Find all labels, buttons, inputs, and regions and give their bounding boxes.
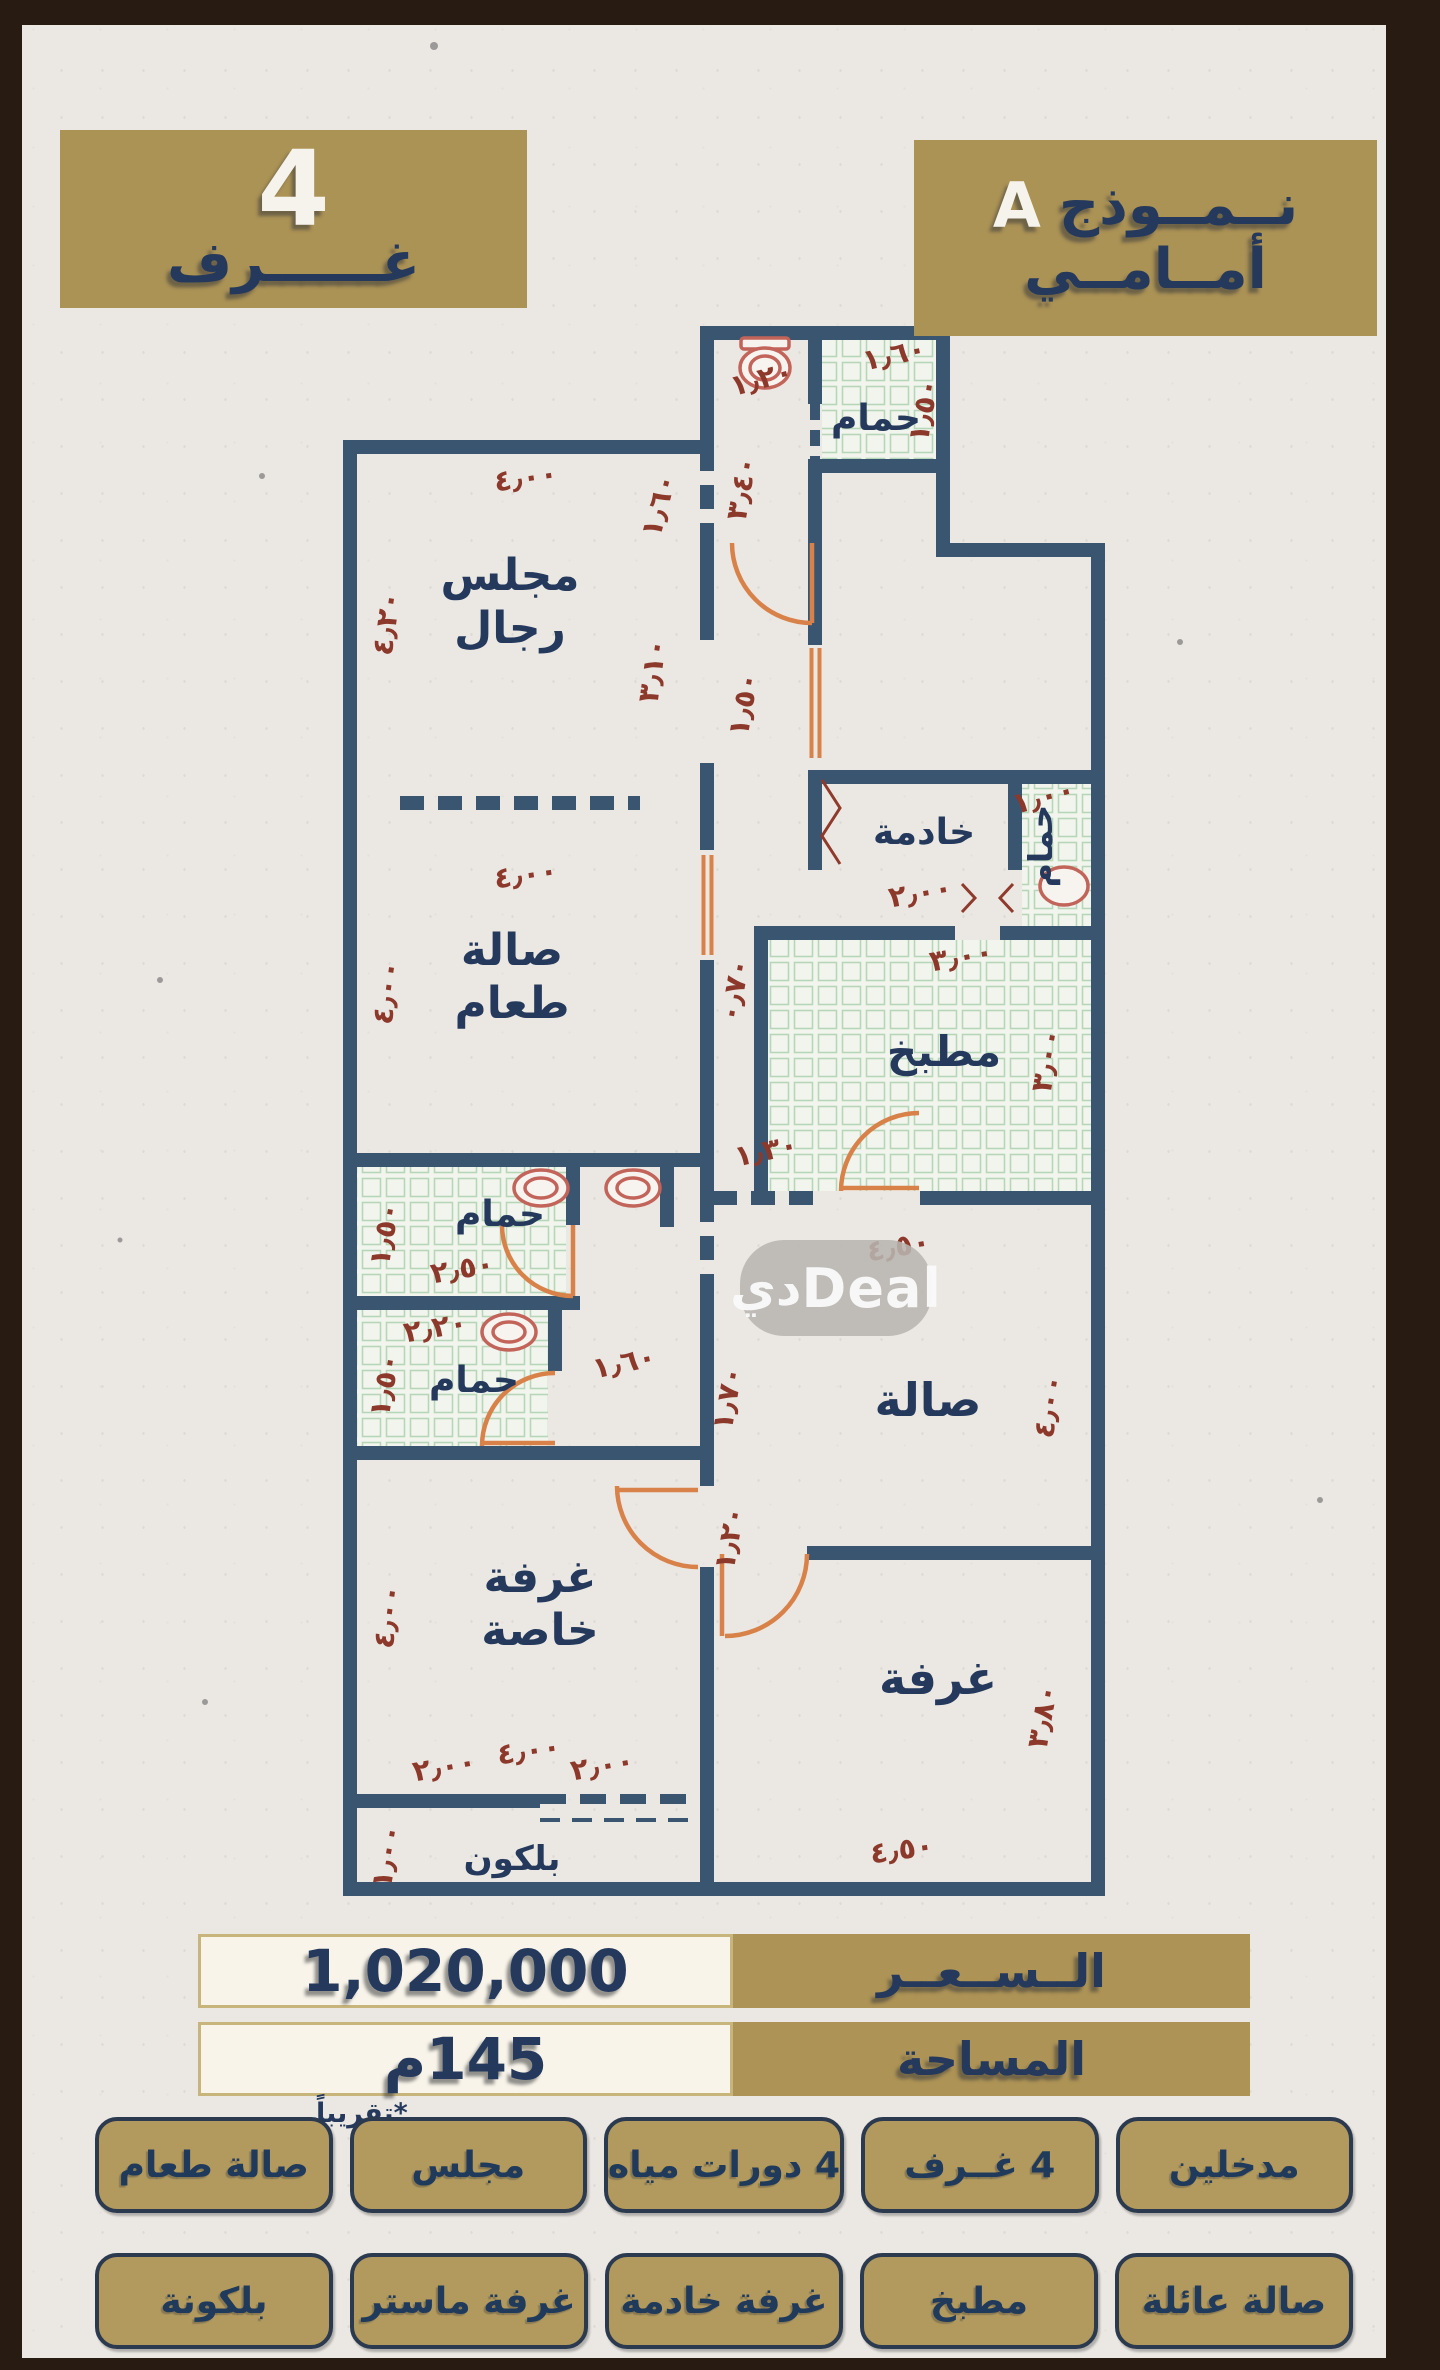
flyer-page: مجلسرجالصالةطعامحمامخادمةحماممطبخحمامحما… <box>0 0 1440 2370</box>
hatch-arrow-icon <box>1000 884 1013 912</box>
room-label-room: غرفة <box>879 1651 997 1705</box>
rooms-count-number: 4 <box>257 145 329 233</box>
feature-chip: 4 دورات مياه <box>604 2117 844 2213</box>
price-label: الــســعــر <box>733 1934 1250 2008</box>
dim-label: ٤٫٠٠ <box>366 1583 409 1651</box>
dim-label: ٤٫٠٠ <box>495 1729 563 1772</box>
model-title: نــمــوذج A <box>993 175 1298 237</box>
price-bar: الــســعــر 1,020,000 <box>198 1934 1250 2008</box>
dim-label: ٣٫٨٠ <box>1020 1682 1065 1751</box>
room-label-private-room: غرفةخاصة <box>481 1552 598 1656</box>
features-row-2: صالة عائلةمطبخغرفة خادمةغرفة ماستربلكونة <box>95 2253 1353 2349</box>
dim-label: ١٫٥٠ <box>721 670 766 739</box>
price-value: 1,020,000 <box>198 1934 733 2008</box>
sink-icon <box>482 1314 536 1350</box>
rooms-count-badge: 4 غــــــرف <box>60 130 527 308</box>
dim-label: ٤٫٠٠ <box>492 853 560 896</box>
dim-label: ١٫٦٠ <box>589 1339 659 1386</box>
room-label-maid: خادمة <box>873 812 975 853</box>
dim-label: ٢٫٠٠ <box>568 1743 637 1788</box>
dim-label: ٠٫٧٠ <box>712 956 757 1025</box>
room-label-kitchen: مطبخ <box>887 1027 1001 1077</box>
watermark-arabic: دي <box>730 1259 801 1317</box>
model-badge: نــمــوذج A أمــامــي <box>914 140 1377 336</box>
feature-chip: مطبخ <box>860 2253 1098 2349</box>
dim-label: ٣٫٤٠ <box>719 454 764 523</box>
area-value: 145م <box>198 2022 733 2096</box>
dim-label: ٤٫٠٠ <box>365 959 408 1027</box>
model-title-arabic: نــمــوذج <box>1059 178 1298 234</box>
feature-chip: صالة عائلة <box>1115 2253 1353 2349</box>
room-label-dining: صالةطعام <box>454 925 569 1029</box>
feature-chip: 4 غــرف <box>861 2117 1099 2213</box>
feature-chip: غرفة ماستر <box>350 2253 588 2349</box>
model-letter: A <box>993 175 1041 237</box>
feature-chip: مدخلين <box>1116 2117 1354 2213</box>
room-label-bath-1: حمام <box>455 1194 545 1235</box>
feature-chip: صالة طعام <box>95 2117 333 2213</box>
features-row-1: مدخلين4 غــرف4 دورات مياهمجلسصالة طعام <box>95 2117 1353 2213</box>
room-label-bath-2: حمام <box>429 1360 519 1401</box>
feature-chip: بلكونة <box>95 2253 333 2349</box>
dim-label: ١٫٠٠ <box>364 1822 409 1891</box>
area-bar: المساحة 145م <box>198 2022 1250 2096</box>
watermark-latin: Deal <box>802 1257 942 1320</box>
dim-label: ٤٫٢٠ <box>365 590 408 658</box>
area-label: المساحة <box>733 2022 1250 2096</box>
dim-label: ١٫٢٠ <box>707 1504 752 1573</box>
deal-watermark: ديDeal <box>740 1240 932 1336</box>
hatch-arrow-icon <box>962 884 975 912</box>
dim-label: ٤٫٠٠ <box>492 456 560 499</box>
dim-label: ٢٫٠٠ <box>886 870 955 915</box>
feature-chip: غرفة خادمة <box>605 2253 843 2349</box>
rooms-count-label: غــــــرف <box>167 234 420 293</box>
dim-label: ٤٫٠٠ <box>1026 1372 1071 1441</box>
dim-label: ١٫٢٠ <box>726 354 797 403</box>
dim-label: ١٫٦٠ <box>634 470 683 541</box>
sink-icon <box>606 1170 660 1206</box>
room-label-hall: صالة <box>875 1373 982 1427</box>
dim-label: ٢٫٠٠ <box>410 1744 479 1789</box>
model-subtitle: أمــامــي <box>1024 237 1267 302</box>
room-label-balcony: بلكون <box>464 1839 561 1879</box>
closet-icon <box>822 780 840 864</box>
room-label-majlis: مجلسرجال <box>440 550 579 654</box>
dim-label: ٣٫١٠ <box>631 637 674 705</box>
feature-chip: مجلس <box>350 2117 588 2213</box>
floor-plan: مجلسرجالصالةطعامحمامخادمةحماممطبخحمامحما… <box>0 0 1440 2370</box>
dim-label: ٤٫٥٠ <box>868 1828 936 1871</box>
